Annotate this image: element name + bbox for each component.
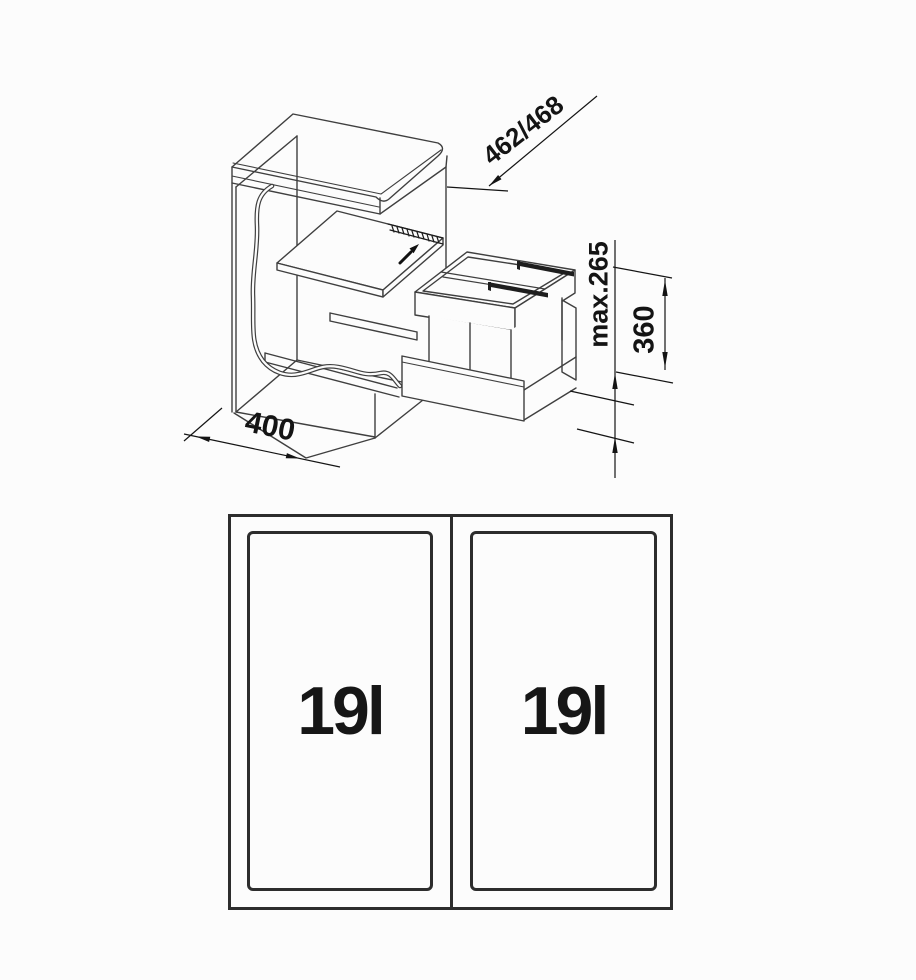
arrowhead-icon xyxy=(662,280,667,296)
bin-left: 19l xyxy=(247,531,433,891)
arrowhead-icon xyxy=(662,352,667,368)
arrowhead-icon xyxy=(612,373,617,389)
bin-right: 19l xyxy=(470,531,657,891)
arrowhead-icon xyxy=(196,437,210,443)
cover-board xyxy=(277,211,443,297)
dim-unit-height-label: 360 xyxy=(631,270,660,390)
dim-unit-height-line xyxy=(662,278,667,370)
technical-drawing-page: 462/468 max.265 360 400 19l 19l xyxy=(0,0,916,980)
dim-max-height-label: max.265 xyxy=(586,220,613,370)
pull-out-rails xyxy=(265,313,417,397)
bin-right-capacity: 19l xyxy=(521,672,607,750)
iso-drawing xyxy=(0,0,916,500)
plan-view-outline: 19l 19l xyxy=(228,514,673,910)
plan-divider xyxy=(450,517,453,907)
bin-left-capacity: 19l xyxy=(297,672,383,750)
arrowhead-icon xyxy=(286,453,300,458)
